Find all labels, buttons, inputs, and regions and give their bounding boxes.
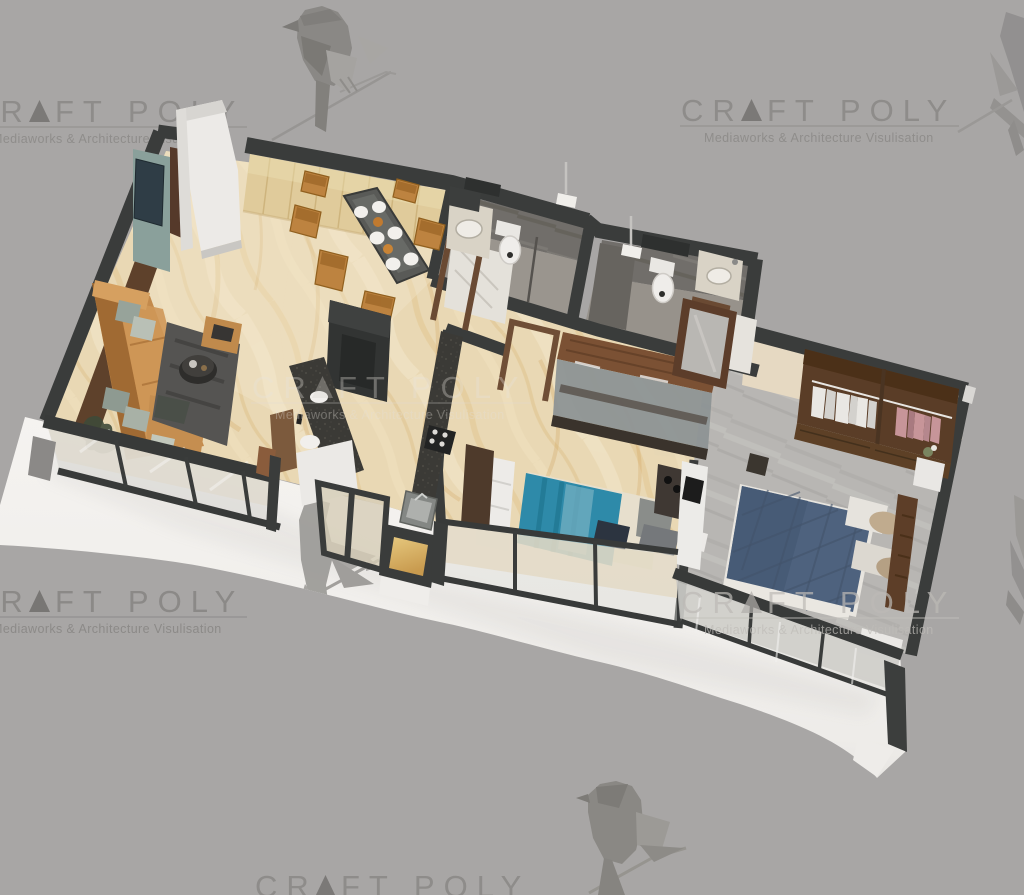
svg-text:Mediaworks & Architecture Visu: Mediaworks & Architecture Visulisation bbox=[704, 131, 934, 145]
svg-text:FT POLY: FT POLY bbox=[767, 585, 956, 620]
svg-text:FT POLY: FT POLY bbox=[338, 370, 527, 405]
svg-text:Mediaworks & Architecture Visu: Mediaworks & Architecture Visulisation bbox=[704, 623, 934, 637]
svg-text:CR: CR bbox=[255, 869, 318, 895]
svg-text:CR: CR bbox=[0, 584, 32, 619]
svg-text:CR: CR bbox=[681, 93, 744, 128]
svg-text:FT POLY: FT POLY bbox=[341, 869, 530, 895]
svg-text:CR: CR bbox=[252, 370, 315, 405]
svg-text:Mediaworks & Architecture Visu: Mediaworks & Architecture Visulisation bbox=[275, 408, 505, 422]
svg-text:CR: CR bbox=[0, 94, 32, 129]
svg-text:Mediaworks & Architecture Visu: Mediaworks & Architecture Visulisation bbox=[0, 622, 222, 636]
svg-text:FT POLY: FT POLY bbox=[767, 93, 956, 128]
svg-text:FT POLY: FT POLY bbox=[55, 584, 244, 619]
svg-text:CR: CR bbox=[681, 585, 744, 620]
